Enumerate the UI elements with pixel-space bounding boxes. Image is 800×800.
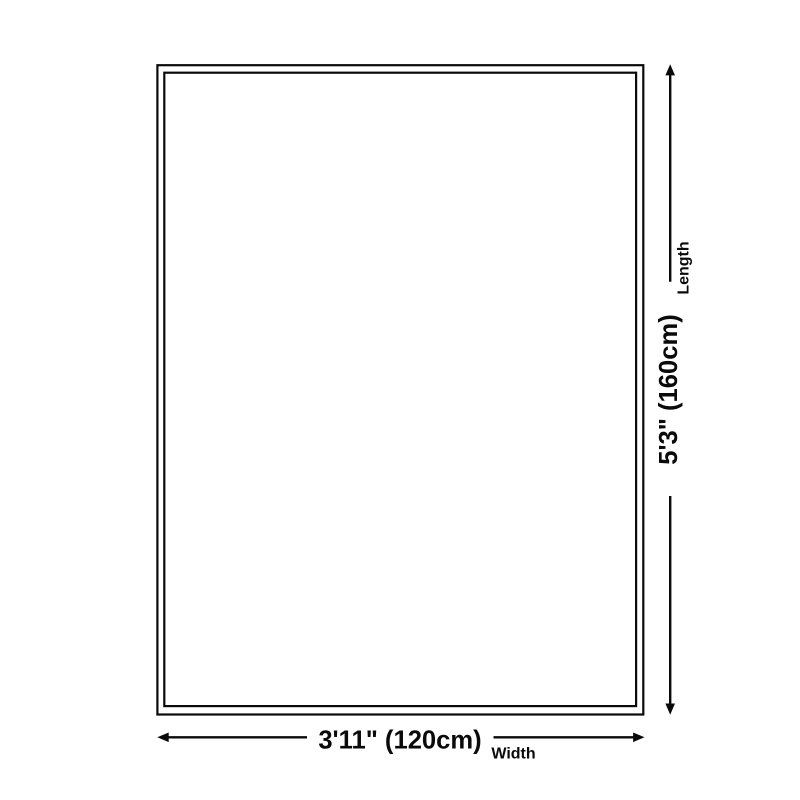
svg-text:5'3" (160cm): 5'3" (160cm)	[655, 314, 683, 465]
svg-text:3'11" (120cm): 3'11" (120cm)	[318, 727, 481, 755]
svg-text:Length: Length	[676, 241, 693, 294]
svg-text:Width: Width	[491, 746, 535, 763]
